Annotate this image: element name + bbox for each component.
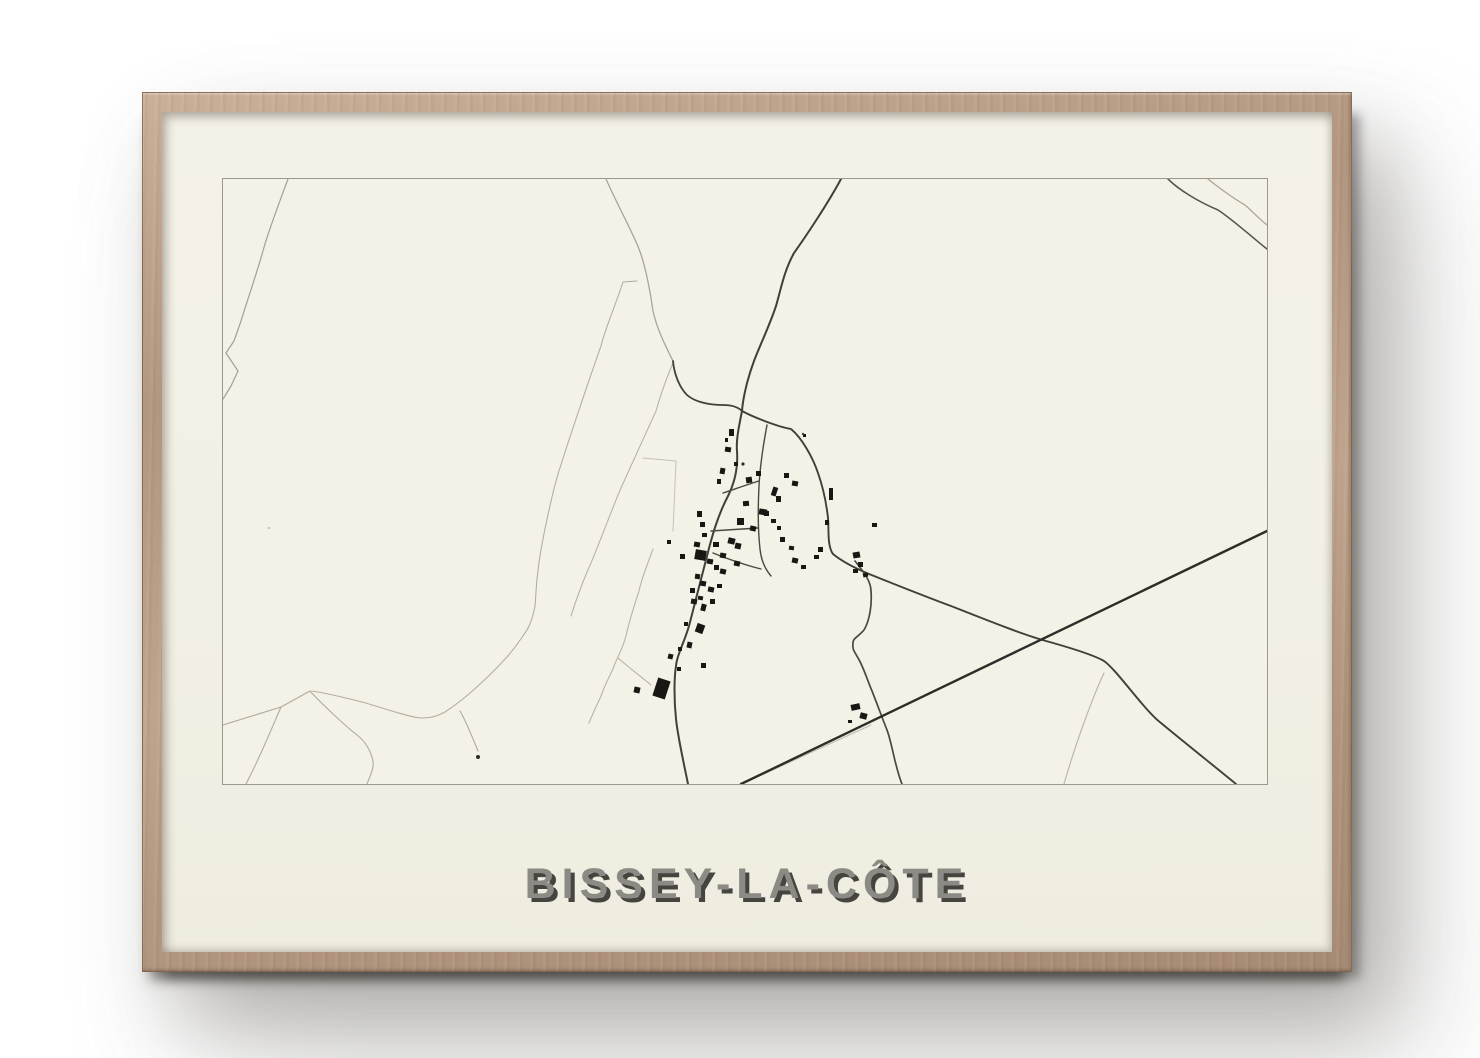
building-footprint xyxy=(633,686,640,693)
building-footprint xyxy=(784,473,789,478)
poster-title: BISSEY-LA-CÔTE xyxy=(162,863,1332,906)
building-footprint xyxy=(700,581,707,587)
building-footprint xyxy=(734,560,741,566)
map-dot xyxy=(268,527,270,529)
scene: BISSEY-LA-CÔTE xyxy=(0,0,1480,1058)
building-footprint xyxy=(818,547,823,552)
commune-map-svg xyxy=(223,179,1267,784)
building-footprint xyxy=(727,537,735,545)
map-dot xyxy=(476,755,480,759)
road-village-lane-upper xyxy=(723,481,759,493)
building-footprint xyxy=(801,565,806,569)
building-footprint xyxy=(872,523,877,527)
road-road-south-curve xyxy=(853,561,902,784)
road-parcel-outline-west xyxy=(643,458,676,531)
building-footprint xyxy=(729,429,734,436)
building-footprint xyxy=(743,501,749,507)
building-footprint xyxy=(792,557,799,563)
building-footprint xyxy=(717,479,721,484)
road-road-northwest-link xyxy=(673,361,742,411)
road-road-topright-light xyxy=(1208,179,1267,225)
road-main-street xyxy=(675,411,743,784)
building-footprint xyxy=(691,599,698,605)
building-footprint xyxy=(850,703,860,711)
building-footprint xyxy=(780,537,785,542)
building-footprint xyxy=(792,481,799,487)
building-footprint xyxy=(677,667,681,671)
building-footprint xyxy=(746,477,753,484)
building-footprint xyxy=(771,486,779,496)
buildings-layer xyxy=(633,429,877,723)
road-road-north xyxy=(742,179,841,411)
building-footprint xyxy=(702,533,707,537)
building-footprint xyxy=(694,542,701,548)
building-footprint xyxy=(667,540,671,544)
building-footprint xyxy=(848,720,852,723)
map-dot xyxy=(802,433,804,435)
map-dot xyxy=(741,462,744,465)
poster-mat: BISSEY-LA-CÔTE xyxy=(162,112,1332,952)
building-footprint xyxy=(697,511,702,517)
building-footprint xyxy=(777,526,781,530)
building-footprint xyxy=(734,462,738,466)
building-footprint xyxy=(725,438,728,442)
building-footprint xyxy=(858,562,863,567)
building-footprint xyxy=(667,653,673,659)
map-panel xyxy=(222,178,1268,785)
road-field-network-a xyxy=(223,691,310,725)
building-footprint xyxy=(776,496,781,502)
road-field-line-top-left xyxy=(223,179,288,399)
road-road-east-loop xyxy=(742,411,1236,784)
building-footprint xyxy=(737,518,744,525)
building-footprint xyxy=(713,542,719,547)
building-footprint xyxy=(789,546,795,551)
building-footprint xyxy=(720,568,727,574)
building-footprint xyxy=(829,488,833,500)
building-footprint xyxy=(700,603,707,611)
building-footprint xyxy=(695,623,706,634)
building-footprint xyxy=(725,447,732,453)
road-field-band-west-b xyxy=(571,363,673,616)
building-footprint xyxy=(690,588,695,593)
picture-frame: BISSEY-LA-CÔTE xyxy=(142,92,1352,972)
road-field-band-west-a xyxy=(312,281,637,718)
building-footprint xyxy=(652,677,670,699)
building-footprint xyxy=(853,569,858,573)
building-footprint xyxy=(825,520,829,525)
building-footprint xyxy=(853,551,861,558)
building-footprint xyxy=(710,599,715,604)
road-farm-spur xyxy=(460,711,478,751)
building-footprint xyxy=(714,565,719,570)
road-village-lane-vertical xyxy=(758,425,771,576)
building-footprint xyxy=(720,553,727,559)
building-footprint xyxy=(694,549,707,561)
building-footprint xyxy=(686,642,692,649)
building-footprint xyxy=(695,574,701,580)
building-footprint xyxy=(707,559,714,565)
road-field-line-south-village xyxy=(589,549,653,723)
building-footprint xyxy=(701,663,706,668)
road-field-network-b xyxy=(246,707,281,784)
roads-layer xyxy=(223,179,1267,784)
building-footprint xyxy=(859,712,867,720)
building-footprint xyxy=(814,555,819,559)
road-field-network-c xyxy=(310,691,373,784)
building-footprint xyxy=(698,596,704,601)
road-branch-southeast xyxy=(1064,673,1104,784)
building-footprint xyxy=(680,554,685,559)
building-footprint xyxy=(684,622,688,626)
road-field-curve-north xyxy=(606,179,673,361)
building-footprint xyxy=(708,586,715,592)
road-field-line-south-village-branch xyxy=(618,658,651,685)
road-road-topright-dark xyxy=(1168,179,1267,249)
building-footprint xyxy=(734,542,741,549)
building-footprint xyxy=(756,471,761,476)
building-footprint xyxy=(717,584,722,588)
building-footprint xyxy=(771,519,776,523)
building-footprint xyxy=(750,525,757,531)
building-footprint xyxy=(700,522,705,527)
building-footprint xyxy=(678,647,682,651)
building-footprint xyxy=(764,511,769,516)
building-footprint xyxy=(720,468,726,475)
